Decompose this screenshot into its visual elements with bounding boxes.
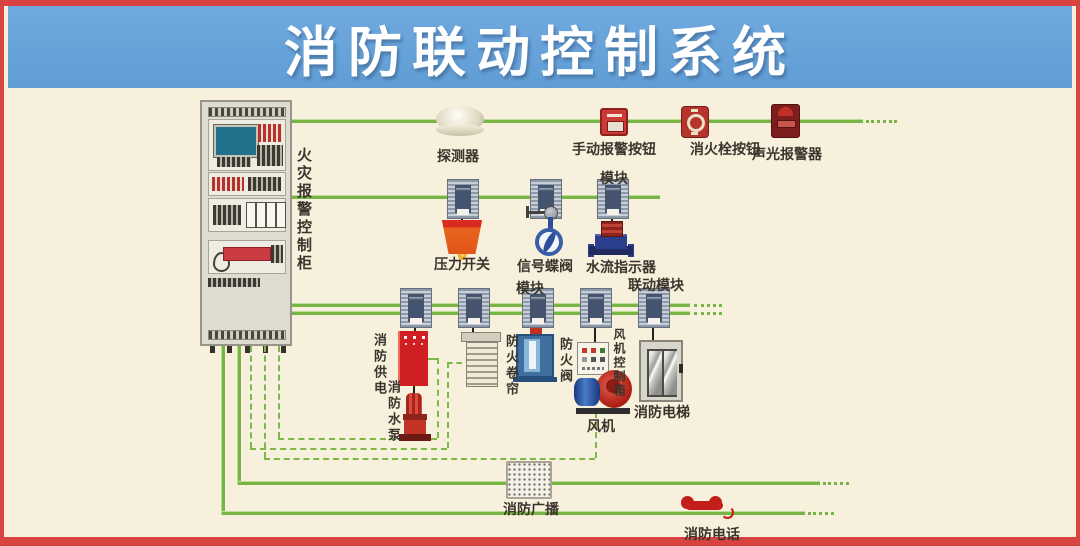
fan-label: 风机 — [587, 416, 615, 436]
elevator-door-left — [649, 351, 662, 395]
title-banner: 消防联动控制系统 — [8, 6, 1072, 88]
cabinet-foot — [227, 346, 232, 353]
pressure-switch-label: 压力开关 — [434, 254, 490, 274]
cabinet-vent-bottom — [208, 330, 286, 340]
cabinet-card-panel — [208, 198, 286, 232]
cabinet-foot — [210, 346, 215, 353]
dashed-stub-3 — [428, 358, 437, 360]
frame-bottom-bar — [0, 537, 1080, 546]
cabinet-handset-panel — [208, 240, 286, 274]
dashed-bus-2 — [264, 458, 595, 460]
sound-light-alarm-icon — [771, 104, 800, 138]
shutter-slats — [466, 342, 498, 387]
water-flow-indicator-label: 水流指示器 — [586, 257, 656, 277]
dashed-riser-3 — [278, 346, 280, 438]
fire-linkage-diagram: 消防联动控制系统 — [0, 0, 1080, 546]
fire-broadcast-speaker-icon — [506, 461, 552, 499]
phone-earpiece — [681, 496, 694, 509]
fire-damper-label: 防火阀 — [555, 337, 574, 385]
loop-line-1-continuation — [866, 120, 897, 123]
signal-valve-icon — [522, 204, 566, 260]
pump-control-cabinet-icon — [398, 331, 428, 386]
dashed-stub-1 — [447, 362, 462, 364]
pressure-switch-body — [438, 220, 486, 254]
fire-shutter-icon — [461, 332, 501, 386]
cabinet-keypad — [257, 145, 283, 166]
detector-base — [436, 124, 484, 136]
fire-telephone-icon — [681, 494, 731, 516]
cabinet-foot — [281, 346, 286, 353]
frame-right-bar — [1076, 0, 1080, 546]
smoke-detector-icon — [436, 106, 484, 138]
cabinet-switch-grid — [213, 205, 241, 225]
elevator-door-right — [664, 351, 677, 395]
cabinet-card-slot — [266, 202, 276, 228]
fire-damper-icon — [516, 332, 556, 384]
fire-elevator-icon — [639, 340, 683, 402]
dashed-pump-riser-b — [447, 362, 449, 448]
cabinet-red-bar — [223, 247, 271, 261]
fire-telephone-label: 消防电话 — [684, 524, 740, 544]
module-icon — [400, 288, 432, 328]
cabinet-keyboard — [217, 157, 251, 167]
loop-line-3a-continuation — [694, 304, 722, 307]
cabinet-lower-strip — [208, 278, 260, 287]
fan-base — [576, 408, 630, 414]
cabinet-vent-top — [208, 107, 286, 117]
page-title: 消防联动控制系统 — [284, 8, 796, 87]
elevator-call-panel — [679, 364, 683, 373]
waterflow-switch — [601, 221, 623, 237]
cabinet-mini-keys — [271, 245, 283, 263]
module-label: 模块 — [600, 168, 628, 188]
damper-slot — [529, 341, 536, 369]
loop-line-3b — [292, 312, 690, 315]
module-icon — [447, 179, 479, 219]
cabinet-card-slot — [256, 202, 266, 228]
dashed-bus-1 — [250, 448, 447, 450]
phone-line-vertical — [222, 346, 225, 515]
cabinet-indicators-right — [248, 177, 281, 191]
fire-broadcast-label: 消防广播 — [503, 499, 559, 519]
module-icon — [458, 288, 490, 328]
linkage-module-label: 联动模块 — [628, 275, 684, 295]
dashed-riser-2 — [264, 346, 266, 458]
fire-alarm-control-cabinet — [200, 100, 292, 346]
cabinet-card-slot — [246, 202, 256, 228]
dashed-riser-1 — [250, 346, 252, 448]
fan-motor-cylinder — [574, 378, 600, 406]
sound-light-alarm-label: 声光报警器 — [752, 144, 822, 164]
detector-label: 探测器 — [437, 146, 479, 166]
cabinet-label: 火灾报警控制柜 — [294, 147, 315, 273]
pump-base — [399, 434, 431, 441]
fire-shutter-label: 防火卷帘 — [501, 334, 520, 398]
cabinet-indicators-left — [212, 177, 244, 191]
hydrant-button-icon — [681, 106, 709, 138]
fan-control-box-label: 风机控制箱 — [611, 328, 628, 398]
cabinet-indicator-panel — [208, 172, 286, 196]
dashed-pump-riser-a — [437, 358, 439, 438]
cabinet-red-buttons — [258, 124, 282, 142]
shutter-lintel — [461, 332, 501, 342]
connector-stem — [594, 326, 596, 343]
pressure-switch-icon — [438, 220, 486, 254]
connector-stem — [652, 326, 654, 341]
phone-line-continuation — [808, 512, 834, 515]
fire-pump-label: 消防水泵 — [383, 380, 402, 444]
manual-alarm-button-label: 手动报警按钮 — [572, 139, 656, 159]
pump-motor — [406, 393, 422, 415]
hydrant-button-label: 消火栓按钮 — [690, 139, 760, 159]
cabinet-screen — [214, 125, 258, 157]
signal-valve-label: 信号蝶阀 — [517, 256, 573, 276]
fire-pump-icon — [400, 393, 430, 441]
valve-handle — [527, 211, 545, 214]
broadcast-line-vertical — [238, 346, 241, 485]
loop-line-3a — [292, 304, 690, 307]
loop-line-3b-continuation — [694, 312, 722, 315]
phone-cord — [721, 506, 734, 519]
fire-elevator-label: 消防电梯 — [634, 402, 690, 422]
module-icon — [580, 288, 612, 328]
cabinet-card-slot — [276, 202, 286, 228]
manual-alarm-button-icon — [600, 108, 628, 136]
water-flow-indicator-icon — [588, 221, 634, 257]
cabinet-display-panel — [208, 119, 286, 171]
frame-left-bar — [0, 0, 4, 546]
module-label: 模块 — [516, 278, 544, 298]
phone-mouthpiece — [709, 496, 722, 509]
broadcast-line-continuation — [823, 482, 849, 485]
